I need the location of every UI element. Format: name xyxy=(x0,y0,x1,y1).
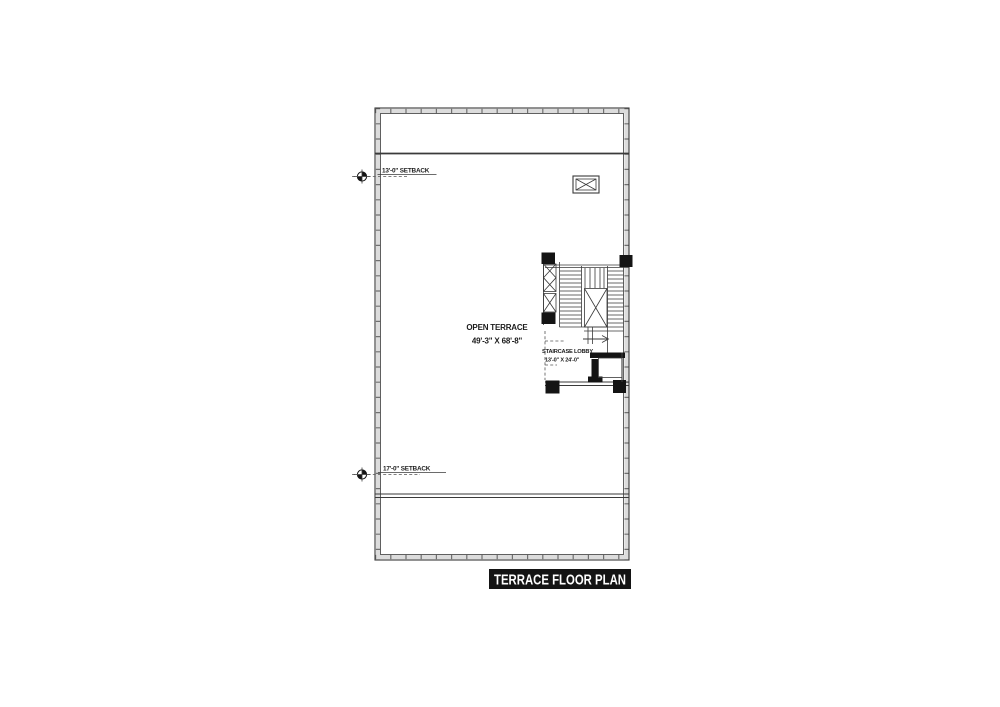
title-block: TERRACE FLOOR PLAN xyxy=(489,569,631,589)
floor-plan-drawing: 13'-0" SETBACK 17'-0" SETBACK xyxy=(0,0,1000,707)
stair-landing-well xyxy=(585,289,608,328)
lobby-dimensions: 13'-0" X 24'-0" xyxy=(545,358,580,364)
lobby-name: STAIRCASE LOBBY xyxy=(542,349,593,355)
inner-wall-line xyxy=(381,114,624,555)
terrace-divider-bottom xyxy=(375,494,629,498)
sheet-title: TERRACE FLOOR PLAN xyxy=(494,572,626,589)
door-leaf xyxy=(592,359,599,379)
room-inner-outline xyxy=(599,358,623,378)
stair-treads xyxy=(560,266,624,353)
setback-label-top: 13'-0" SETBACK xyxy=(382,168,430,175)
terrace-name: OPEN TERRACE xyxy=(466,323,528,332)
floor-plan-sheet: 13'-0" SETBACK 17'-0" SETBACK xyxy=(0,0,1000,707)
lobby-boundary-dashed xyxy=(545,331,564,380)
stair-enclosure-top xyxy=(545,265,629,268)
staircase-core: STAIRCASE LOBBY 13'-0" X 24'-0" xyxy=(542,253,633,394)
room-top-wall xyxy=(590,353,625,359)
shaft-box-icon xyxy=(573,176,599,193)
terrace-dimensions: 49'-3" X 68'-8" xyxy=(472,337,523,346)
stair-direction-arrow xyxy=(583,336,609,343)
open-terrace-label: OPEN TERRACE 49'-3" X 68'-8" xyxy=(466,323,528,346)
staircase-lobby-label: STAIRCASE LOBBY 13'-0" X 24'-0" xyxy=(542,349,593,364)
machine-room xyxy=(588,353,625,383)
setback-annotation-bottom: 17'-0" SETBACK xyxy=(352,466,446,482)
setback-label-bottom: 17'-0" SETBACK xyxy=(383,466,431,473)
setback-annotation-top: 13'-0" SETBACK xyxy=(352,168,437,184)
